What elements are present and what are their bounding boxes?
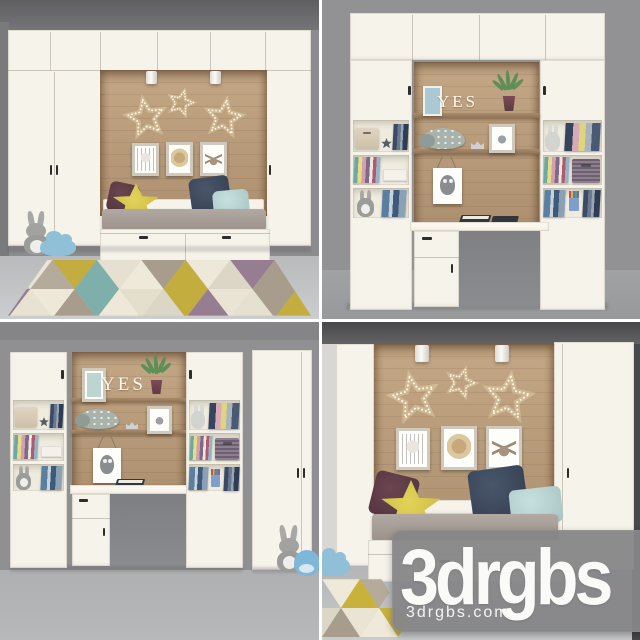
drawer-handle — [79, 499, 88, 502]
desk-top — [70, 485, 190, 494]
mini-shelf-trinkets — [383, 169, 407, 181]
picture-frame-tiger — [132, 143, 159, 176]
books — [40, 466, 62, 490]
potted-plant — [496, 70, 522, 112]
door-handle — [103, 528, 105, 536]
ceiling-shade — [0, 322, 319, 340]
door-handle — [50, 165, 52, 175]
plush-bunny — [545, 124, 562, 151]
ceiling — [0, 0, 319, 30]
star-light-icon — [479, 369, 538, 428]
wardrobe-door-seam — [54, 72, 55, 242]
door-handle — [269, 165, 271, 175]
pencils — [569, 191, 579, 198]
door-handle — [61, 370, 64, 379]
books — [208, 403, 239, 429]
plush-fox-sleeping — [421, 128, 465, 149]
drawer-handle — [139, 236, 148, 239]
under-desk-shadow — [110, 494, 186, 564]
books — [564, 123, 600, 151]
scene-desk-unit-angle: YES — [0, 322, 319, 640]
ceiling — [322, 322, 640, 344]
top-cabinets — [350, 13, 605, 60]
picture-frame-deer — [486, 426, 522, 470]
door-handle — [56, 165, 58, 175]
watermark-url: 3drgbs.com — [406, 604, 510, 622]
books — [188, 467, 208, 490]
spotlight-icon — [415, 345, 429, 362]
floor — [0, 570, 319, 640]
storage-box — [355, 128, 379, 149]
left-shelf-column — [350, 60, 412, 310]
plush-cloud — [322, 556, 350, 576]
render-collage: YES — [0, 0, 640, 640]
books — [353, 157, 380, 183]
drawer-handle — [422, 237, 432, 240]
plush-bunny — [191, 404, 207, 429]
under-desk-shadow — [459, 231, 540, 305]
potted-plant — [144, 354, 170, 396]
spotlight-icon — [495, 345, 509, 362]
picture-frame-bear — [147, 406, 172, 434]
door-handle — [297, 468, 299, 478]
plush-fox-sleeping — [77, 409, 119, 429]
yes-letters: YES — [101, 374, 146, 396]
star-light-icon — [121, 93, 172, 144]
books — [392, 124, 408, 150]
watermark-plate: 3drgbs 3drgbs.com — [392, 530, 640, 632]
books — [543, 190, 565, 217]
door-handle — [567, 468, 569, 478]
star-light-icon — [200, 94, 248, 142]
woven-basket — [215, 438, 239, 460]
door-handle — [189, 370, 192, 379]
drawer-handle — [222, 236, 231, 239]
shelf-board — [414, 149, 539, 154]
books — [223, 467, 239, 491]
plush-whale — [294, 550, 319, 576]
plush-bunny — [357, 190, 376, 217]
books — [543, 157, 569, 183]
door-handle — [451, 264, 453, 273]
door-handle — [408, 86, 411, 95]
owl-poster — [93, 448, 121, 483]
pencil-cup — [569, 198, 579, 211]
star-light-icon — [383, 367, 445, 429]
right-shelf-column — [540, 60, 605, 310]
desk-top — [410, 222, 549, 231]
woven-basket — [572, 159, 600, 183]
plush-cloud — [40, 238, 76, 256]
picture-frame-bear — [489, 124, 515, 153]
pencil-cup — [211, 475, 220, 487]
side-wall — [322, 344, 336, 565]
triangle-rug — [8, 260, 311, 318]
wardrobe-left-panel — [336, 344, 374, 566]
picture-frame-lion — [166, 142, 193, 176]
books — [13, 435, 38, 459]
books — [189, 436, 212, 460]
books — [49, 404, 63, 428]
door-handle — [543, 86, 546, 95]
spotlight-icon — [210, 71, 221, 84]
picture-frame-tiger — [396, 428, 430, 470]
scene-desk-wall-unit: YES — [322, 0, 640, 319]
books — [582, 190, 600, 217]
mini-shelf-trinkets — [41, 446, 62, 457]
storage-box — [15, 407, 37, 427]
spotlight-icon — [146, 71, 157, 84]
plush-bunny — [16, 466, 33, 490]
mattress — [102, 209, 266, 231]
owl-poster — [433, 168, 462, 204]
picture-frame-deer — [200, 142, 227, 176]
books — [381, 190, 406, 217]
yes-letters: YES — [437, 92, 478, 112]
picture-frame-lion — [441, 426, 477, 470]
scene-bed-nook-overview — [0, 0, 319, 319]
door-handle — [303, 468, 305, 478]
scene-bed-nook-closeup: 3drgbs 3drgbs.com — [322, 322, 640, 640]
